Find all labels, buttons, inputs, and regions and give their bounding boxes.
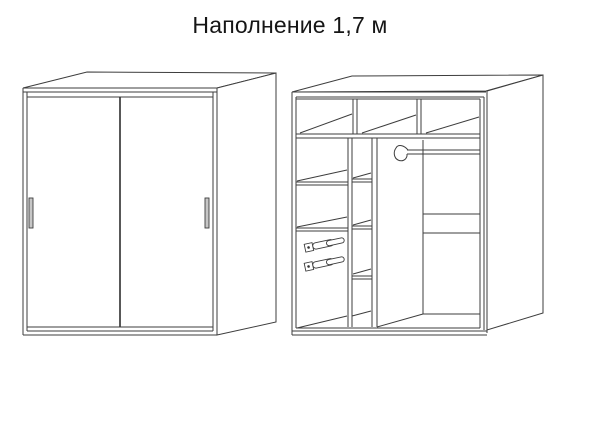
shelf <box>352 226 372 229</box>
right-door-handle <box>205 198 209 228</box>
left-column-divider <box>348 138 352 327</box>
left-door-handle <box>29 198 33 228</box>
upper-shelf <box>296 134 480 138</box>
middle-shelf-column <box>352 173 372 279</box>
shelf <box>352 179 372 182</box>
back-wall-shelf-lines <box>423 214 480 233</box>
shelf <box>352 276 372 279</box>
wardrobe-closed-view <box>23 72 276 335</box>
top-front-edge <box>292 92 486 97</box>
left-edge <box>23 88 27 335</box>
tall-partition <box>372 138 377 327</box>
cubby-divider <box>417 99 421 134</box>
interior-floor <box>297 311 480 328</box>
base-panel <box>292 331 487 335</box>
shelf-perspective-line <box>426 117 479 133</box>
shelf-perspective-line <box>297 217 347 227</box>
upper-shelf-three-compartments <box>296 99 480 138</box>
top-front-edge <box>23 88 217 92</box>
hanging-section <box>394 140 480 314</box>
shelf-perspective-line <box>300 114 352 133</box>
shelf <box>296 182 348 185</box>
shelf <box>296 228 348 231</box>
shelf-perspective-line <box>297 170 347 181</box>
cubby-divider <box>353 99 357 134</box>
drawer-slide-lower <box>304 255 345 271</box>
left-edge <box>292 92 296 335</box>
drawer-slide-upper <box>304 236 345 252</box>
left-shelf-column <box>296 170 348 231</box>
shelf-perspective-line <box>353 173 371 178</box>
shelf-perspective-line <box>362 115 416 133</box>
shelf-perspective-line <box>353 220 371 225</box>
base-panel <box>23 331 217 335</box>
catalog-image: Наполнение 1,7 м <box>0 0 600 422</box>
right-side-panel <box>487 75 543 330</box>
wardrobe-interior-view <box>292 75 543 335</box>
right-inner-wall <box>480 97 484 330</box>
right-edge <box>213 88 217 335</box>
hanging-rod <box>407 150 480 154</box>
right-side-panel <box>217 73 276 335</box>
shelf-perspective-line <box>353 269 371 274</box>
wardrobe-diagram <box>0 0 600 422</box>
hanging-rod-hook <box>394 146 408 161</box>
